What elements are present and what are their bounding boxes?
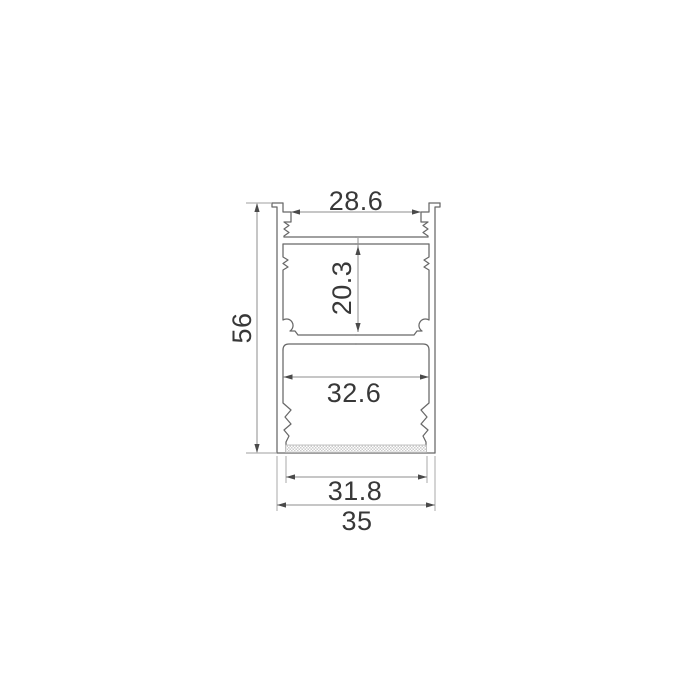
dimension-overall-height: 56 <box>227 203 277 453</box>
profile-left-half <box>272 203 356 453</box>
drawing-canvas: 28.6 20.3 56 32.6 <box>0 0 700 700</box>
dimension-lower-cavity: 32.6 <box>284 374 430 408</box>
arrowhead-down <box>254 444 259 453</box>
arrowhead-left <box>284 374 293 379</box>
dimension-middle-cavity-height: 20.3 <box>327 238 361 332</box>
arrowhead-right <box>418 474 427 479</box>
dimension-top-opening: 28.6 <box>291 186 421 216</box>
arrowhead-right <box>412 209 421 214</box>
arrowhead-down <box>355 323 360 332</box>
arrowhead-up <box>254 203 259 212</box>
arrowhead-right <box>420 374 429 379</box>
arrowhead-right <box>426 502 435 507</box>
dim-label-middle-cavity-height: 20.3 <box>327 261 357 316</box>
arrowhead-left <box>291 209 300 214</box>
arrowhead-left <box>277 502 286 507</box>
diffuser-hatch <box>286 445 427 453</box>
arrowhead-left <box>286 474 295 479</box>
dimension-bottom-inner: 31.8 <box>286 456 427 506</box>
profile-outline <box>272 203 440 453</box>
arrowhead-up <box>355 246 360 255</box>
dim-label-overall-width: 35 <box>341 506 372 536</box>
profile-right-half <box>356 203 440 453</box>
dim-label-lower-cavity-width: 32.6 <box>327 378 382 408</box>
dim-label-bottom-inner-width: 31.8 <box>328 476 383 506</box>
dim-label-overall-height: 56 <box>227 312 257 343</box>
technical-drawing: 28.6 20.3 56 32.6 <box>0 0 700 700</box>
dim-label-top-opening-width: 28.6 <box>329 186 384 216</box>
